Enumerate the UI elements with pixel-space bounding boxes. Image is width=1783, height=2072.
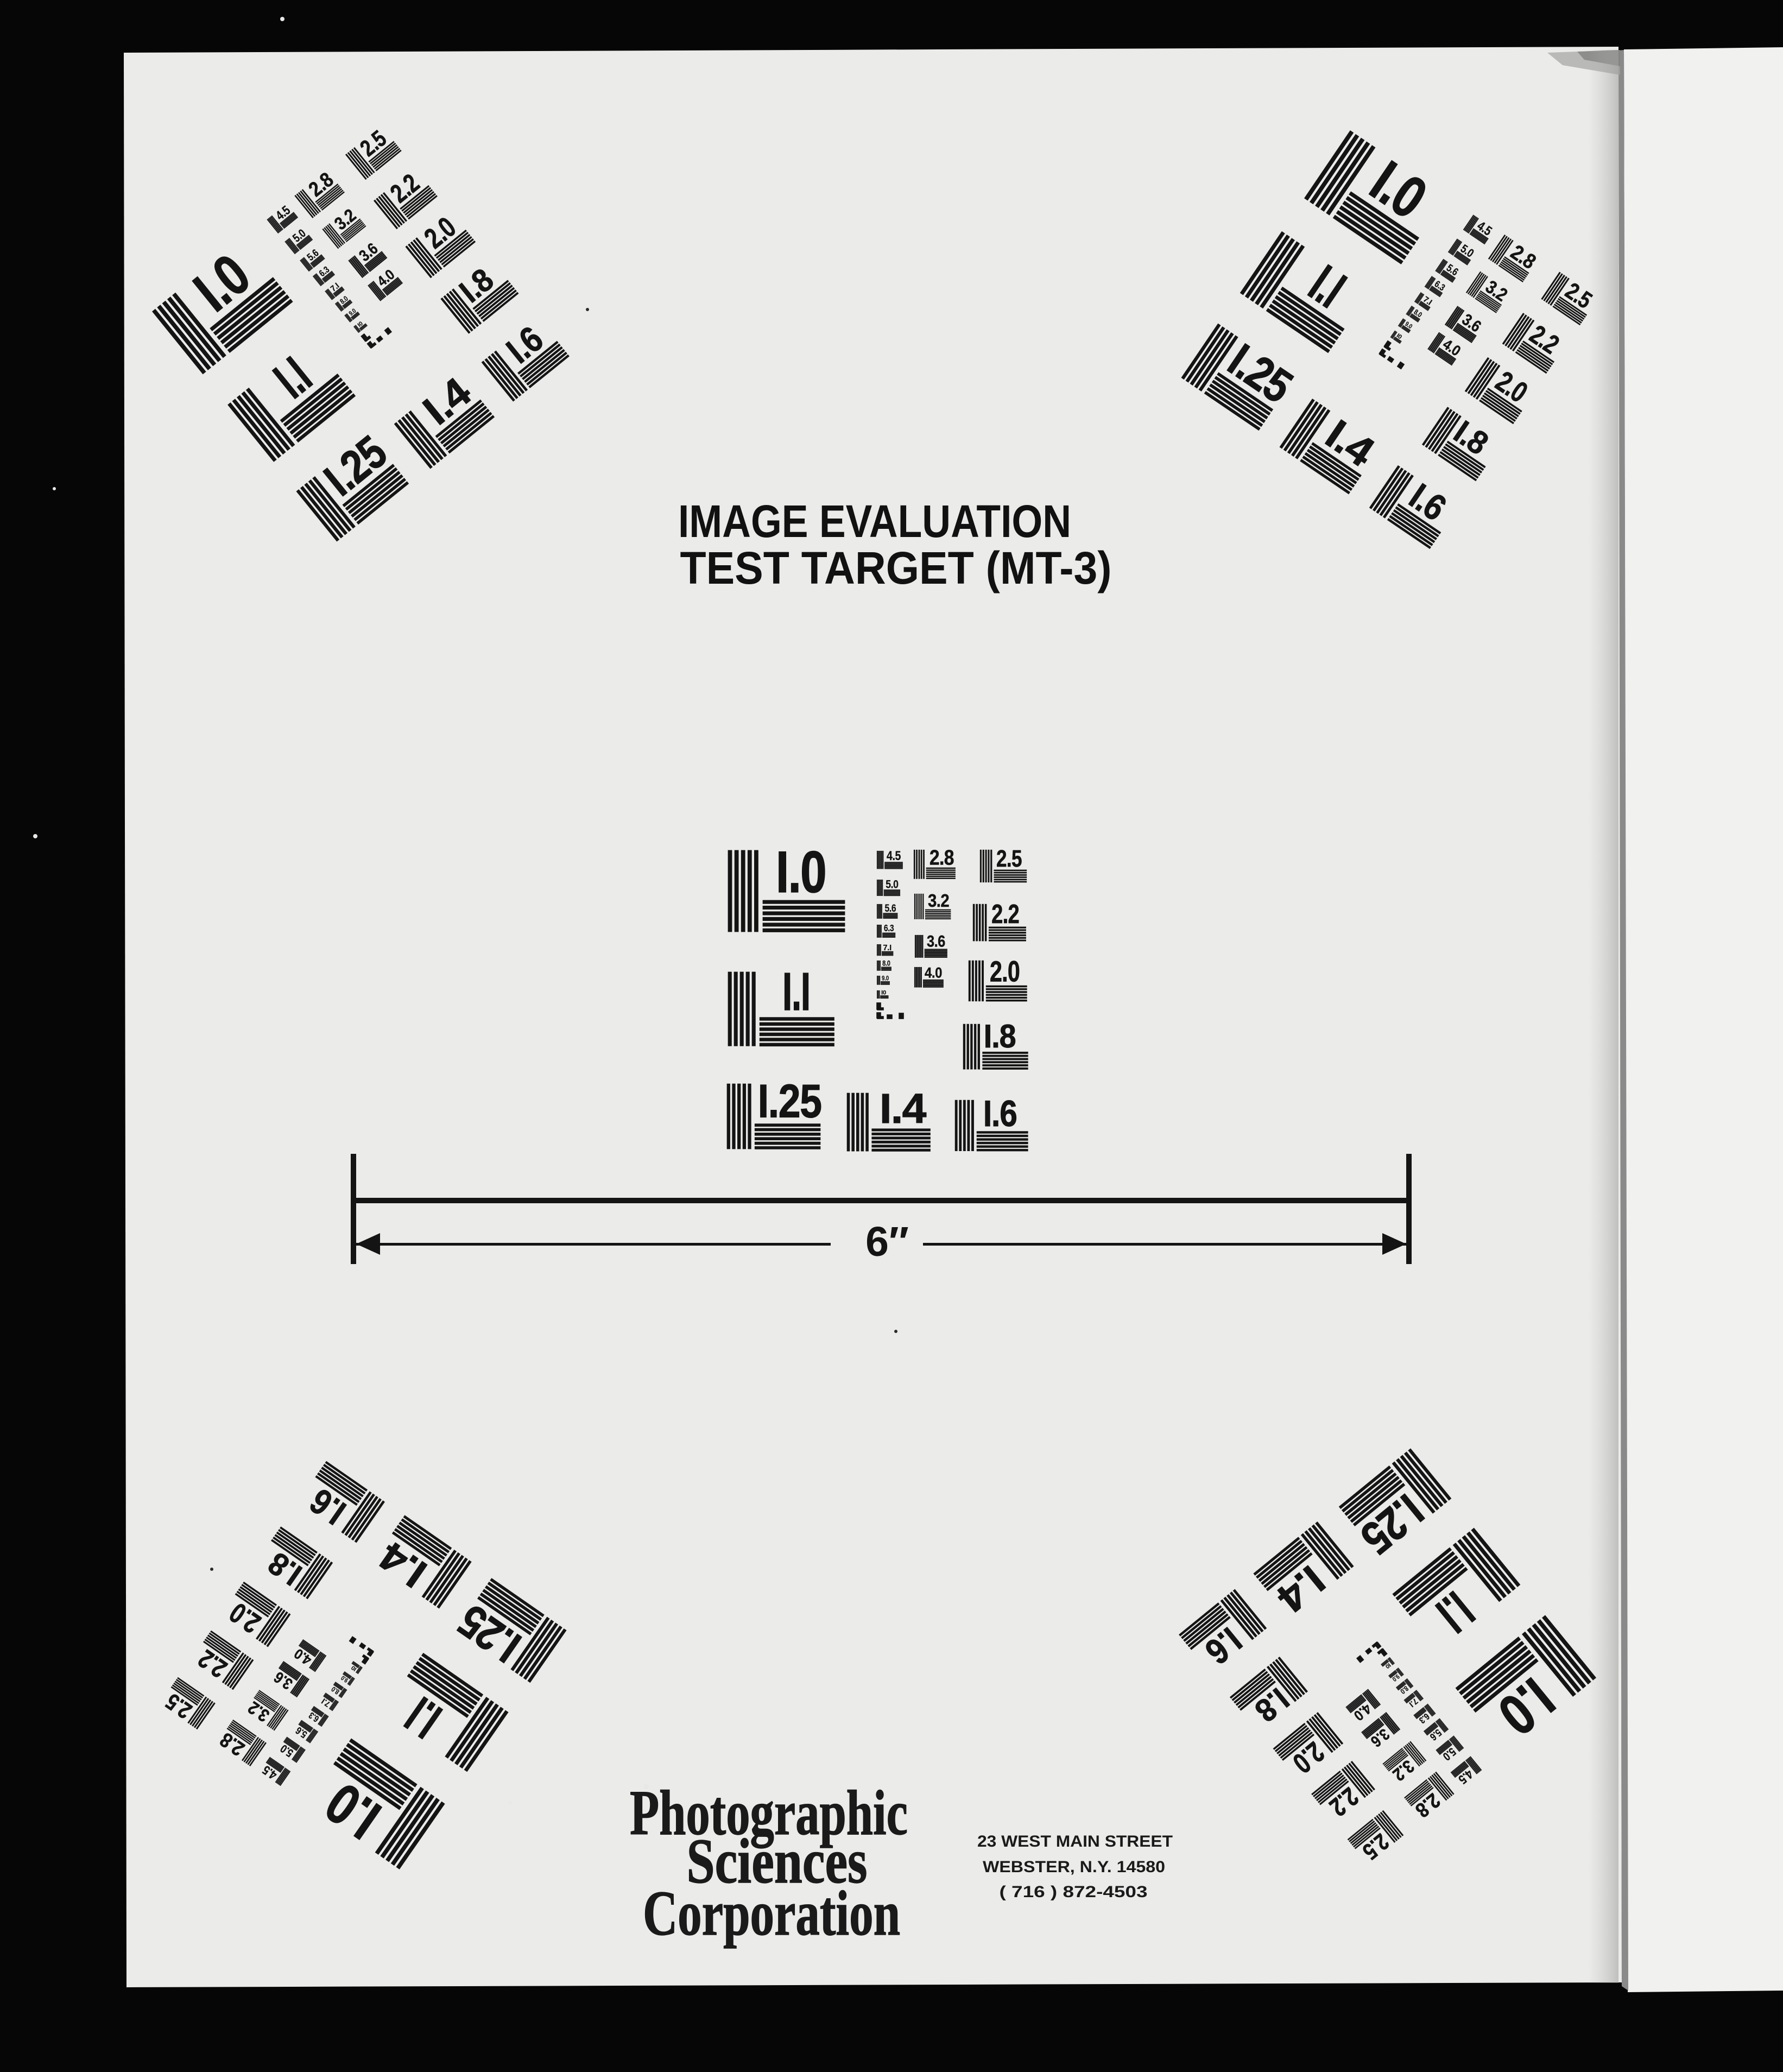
svg-text:IMAGE EVALUATION: IMAGE EVALUATION (678, 496, 1071, 547)
svg-text:6″: 6″ (865, 1218, 909, 1265)
svg-text:TEST TARGET (MT-3): TEST TARGET (MT-3) (680, 542, 1112, 593)
svg-text:( 716 ) 872-4503: ( 716 ) 872-4503 (1000, 1883, 1148, 1901)
svg-text:Corporation: Corporation (643, 1878, 900, 1949)
svg-text:WEBSTER, N.Y. 14580: WEBSTER, N.Y. 14580 (983, 1858, 1165, 1876)
svg-text:23 WEST MAIN STREET: 23 WEST MAIN STREET (977, 1833, 1173, 1850)
